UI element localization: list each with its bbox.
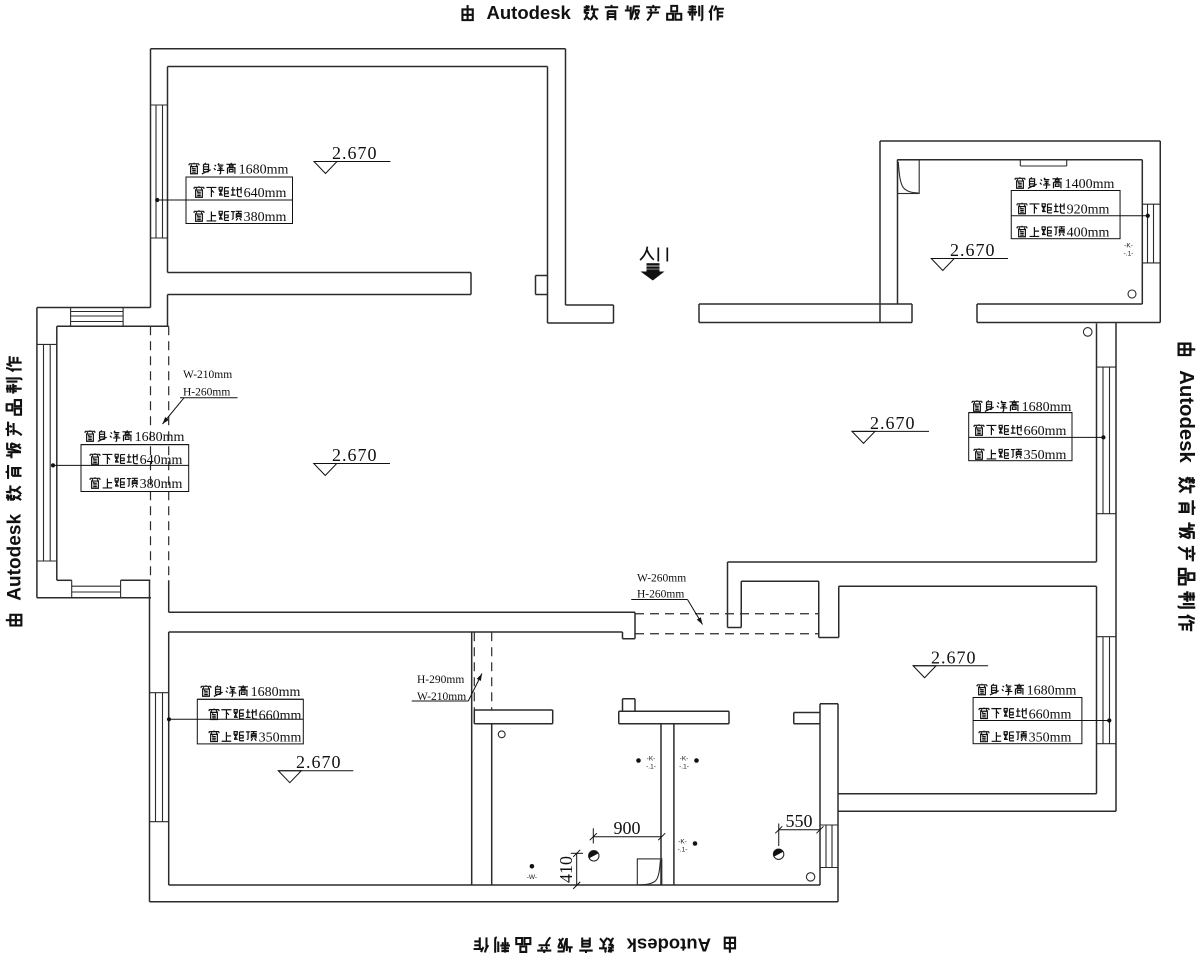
svg-text:660mm: 660mm bbox=[1029, 707, 1072, 722]
svg-text:900: 900 bbox=[614, 818, 641, 838]
svg-text:2.670: 2.670 bbox=[332, 143, 378, 163]
svg-text:1400mm: 1400mm bbox=[1065, 177, 1115, 192]
svg-text:1680mm: 1680mm bbox=[1022, 400, 1072, 415]
svg-text:W-210mm: W-210mm bbox=[183, 369, 232, 381]
svg-text:640mm: 640mm bbox=[244, 186, 287, 201]
svg-text:400mm: 400mm bbox=[1067, 226, 1110, 241]
svg-text:H-290mm: H-290mm bbox=[417, 674, 464, 686]
svg-text:Autodesk: Autodesk bbox=[1175, 370, 1197, 463]
svg-text:-K-: -K- bbox=[680, 756, 689, 763]
svg-text:640mm: 640mm bbox=[140, 453, 183, 468]
svg-text:Autodesk: Autodesk bbox=[626, 935, 711, 956]
svg-text:1680mm: 1680mm bbox=[251, 685, 301, 700]
svg-text:Autodesk: Autodesk bbox=[487, 2, 572, 23]
svg-text:350mm: 350mm bbox=[1024, 448, 1067, 463]
svg-text:550: 550 bbox=[786, 811, 813, 831]
svg-text:2.670: 2.670 bbox=[950, 240, 996, 260]
svg-text:1680mm: 1680mm bbox=[1027, 684, 1077, 699]
svg-text:350mm: 350mm bbox=[259, 730, 302, 745]
svg-text:Autodesk: Autodesk bbox=[4, 514, 25, 601]
svg-text:920mm: 920mm bbox=[1067, 203, 1110, 218]
svg-text:350mm: 350mm bbox=[1029, 731, 1072, 746]
svg-text:-.1-: -.1- bbox=[646, 764, 656, 771]
svg-text:W-260mm: W-260mm bbox=[637, 573, 686, 585]
svg-text:-K-: -K- bbox=[647, 756, 656, 763]
svg-text:-.1-: -.1- bbox=[679, 764, 689, 771]
svg-text:1680mm: 1680mm bbox=[239, 163, 289, 178]
svg-text:660mm: 660mm bbox=[1024, 424, 1067, 439]
svg-text:380mm: 380mm bbox=[140, 477, 183, 492]
svg-text:1680mm: 1680mm bbox=[135, 430, 185, 445]
svg-text:H-260mm: H-260mm bbox=[637, 589, 684, 601]
svg-text:2.670: 2.670 bbox=[332, 445, 378, 465]
svg-text:-K-: -K- bbox=[1124, 243, 1133, 250]
svg-text:-.1-: -.1- bbox=[1124, 251, 1134, 258]
svg-text:-K-: -K- bbox=[678, 839, 687, 846]
svg-text:H-260mm: H-260mm bbox=[183, 387, 230, 399]
svg-text:2.670: 2.670 bbox=[296, 752, 342, 772]
svg-text:410: 410 bbox=[556, 856, 576, 883]
svg-text:660mm: 660mm bbox=[259, 708, 302, 723]
svg-text:380mm: 380mm bbox=[244, 210, 287, 225]
svg-text:2.670: 2.670 bbox=[870, 413, 916, 433]
svg-text:2.670: 2.670 bbox=[931, 647, 977, 667]
svg-text:-W-: -W- bbox=[527, 874, 537, 881]
svg-text:-.1-: -.1- bbox=[678, 847, 688, 854]
